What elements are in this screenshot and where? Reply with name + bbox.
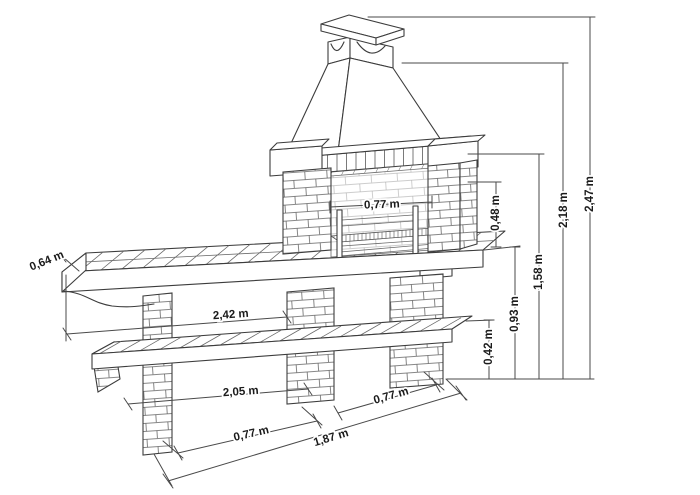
dim-label-lower-shelf-height: 0,42 m — [483, 329, 495, 365]
chimney — [287, 15, 449, 152]
left-leg — [143, 293, 172, 455]
dim-label-hood-height: 2,18 m — [558, 192, 570, 228]
barbecue-technical-drawing: 0,64 m 0,77 m 2,42 m 2,05 m 0,77 m 0,77 … — [0, 0, 700, 495]
firebox-left-column — [283, 168, 331, 254]
dim-label-firebox-opening-height: 0,48 m — [490, 195, 502, 231]
dim-label-pier-spacing: 0,77 m — [233, 424, 271, 444]
hood-right-face — [338, 58, 449, 152]
firebox-right-column-side — [460, 160, 477, 249]
dim-label-side-depth: 0,77 m — [372, 385, 410, 406]
firebox-right-column — [428, 163, 460, 252]
drawing-canvas: 0,64 m 0,77 m 2,42 m 2,05 m 0,77 m 0,77 … — [0, 0, 700, 495]
dim-label-counter-height: 0,93 m — [509, 296, 521, 332]
dim-label-counter-length: 2,42 m — [213, 308, 250, 322]
dim-label-mantel-height: 1,58 m — [533, 254, 545, 290]
dim-label-total-height: 2,47 m — [584, 176, 596, 212]
dim-label-lower-shelf-length: 2,05 m — [223, 385, 260, 399]
counter-apron-bracket-curve — [64, 291, 154, 307]
dim-label-firebox-width: 0,77 m — [364, 198, 400, 211]
dim-label-counter-depth: 0,64 m — [28, 249, 66, 274]
dim-label-base-length: 1,87 m — [312, 427, 350, 449]
